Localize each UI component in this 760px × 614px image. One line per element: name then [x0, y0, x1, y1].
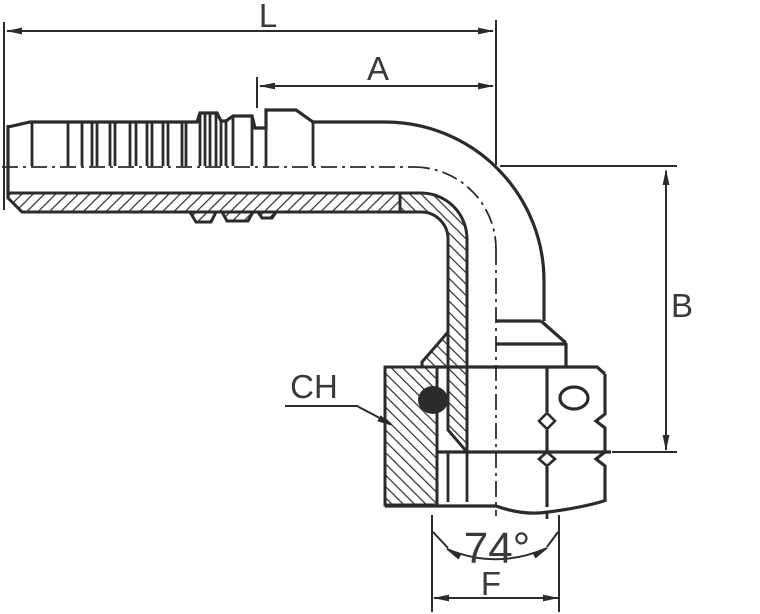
arrowhead-right: [478, 28, 494, 35]
dim-label-a: A: [367, 50, 389, 87]
arrowhead-right: [543, 595, 559, 602]
hex-corner-mark-lower: [539, 452, 555, 466]
nut-collar-profile: [496, 321, 566, 367]
dimension-B: B: [500, 166, 693, 452]
technical-drawing-canvas: L A B CH 74° F: [0, 0, 760, 614]
stem-wall-section: [8, 193, 400, 212]
dim-label-b: B: [671, 287, 693, 324]
arrowhead-right: [478, 83, 494, 90]
section-walls: [8, 193, 467, 505]
dimension-A: A: [257, 50, 494, 108]
nut-detail-hole: [560, 387, 588, 409]
barb-ribs: [32, 123, 186, 166]
leader-line-ch: [285, 406, 391, 424]
arrowhead-left: [6, 28, 22, 35]
nut-bottom-details: [448, 452, 547, 519]
nut-right-edge: [596, 374, 605, 502]
stem-wall-serrations: [190, 212, 276, 222]
arrowhead-left: [433, 595, 449, 602]
dimension-CH: CH: [285, 368, 395, 429]
arrowhead-up: [663, 169, 670, 185]
hex-corner-mark-upper: [539, 413, 555, 429]
collar-edges: [200, 110, 313, 166]
dim-label-l: L: [259, 0, 277, 34]
retaining-ball: [418, 386, 448, 414]
dim-label-f: F: [481, 565, 501, 602]
arrowhead-down: [663, 435, 670, 451]
dim-label-ch: CH: [290, 368, 338, 405]
dimension-F: F: [433, 565, 559, 602]
fitting-diagram: L A B CH 74° F: [0, 0, 760, 614]
dimension-L: L: [4, 0, 496, 210]
arrowhead-left: [259, 83, 275, 90]
socket-flare-section: [422, 332, 448, 367]
